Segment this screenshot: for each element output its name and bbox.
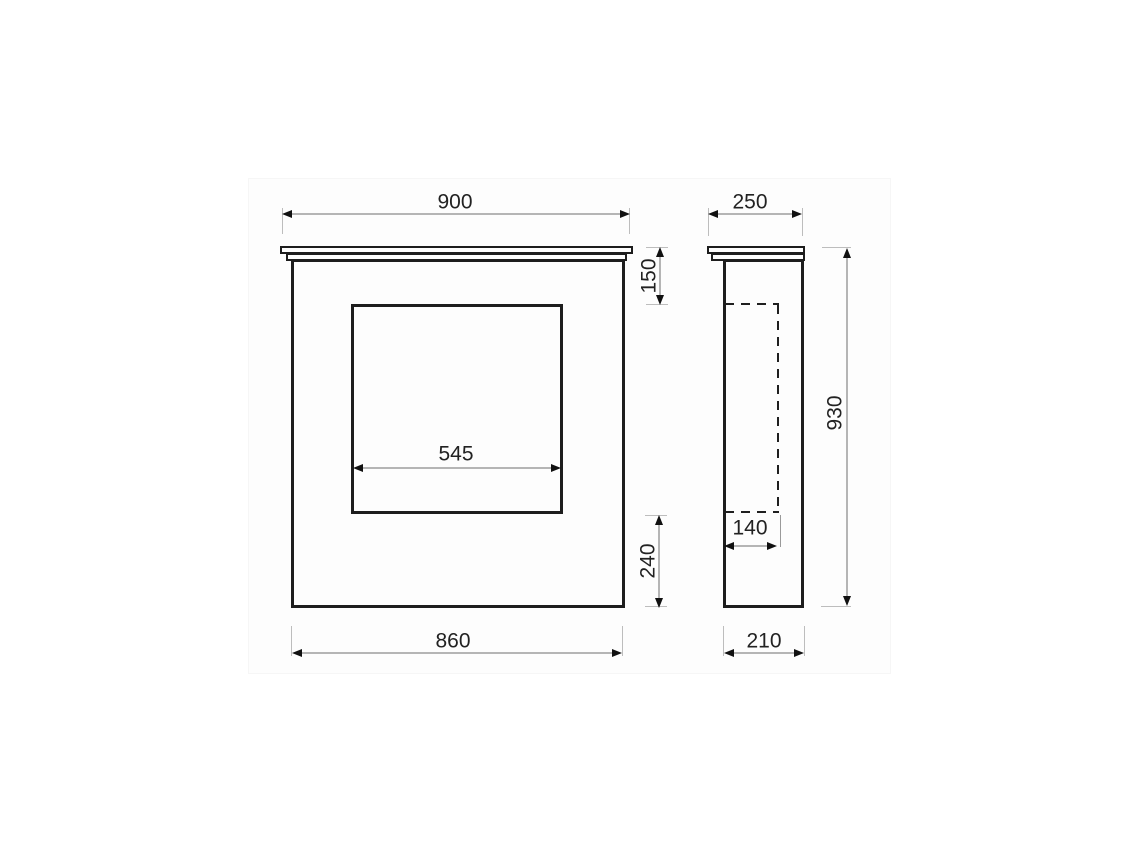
dimension-label: 210 (746, 631, 781, 652)
dimension-drawing-page: 900 545 150 240 860 (0, 0, 1140, 855)
extension-line (804, 626, 805, 656)
dim-side-base-depth: 210 (0, 0, 1140, 855)
arrowhead-left-icon (724, 649, 734, 657)
arrowhead-right-icon (794, 649, 804, 657)
